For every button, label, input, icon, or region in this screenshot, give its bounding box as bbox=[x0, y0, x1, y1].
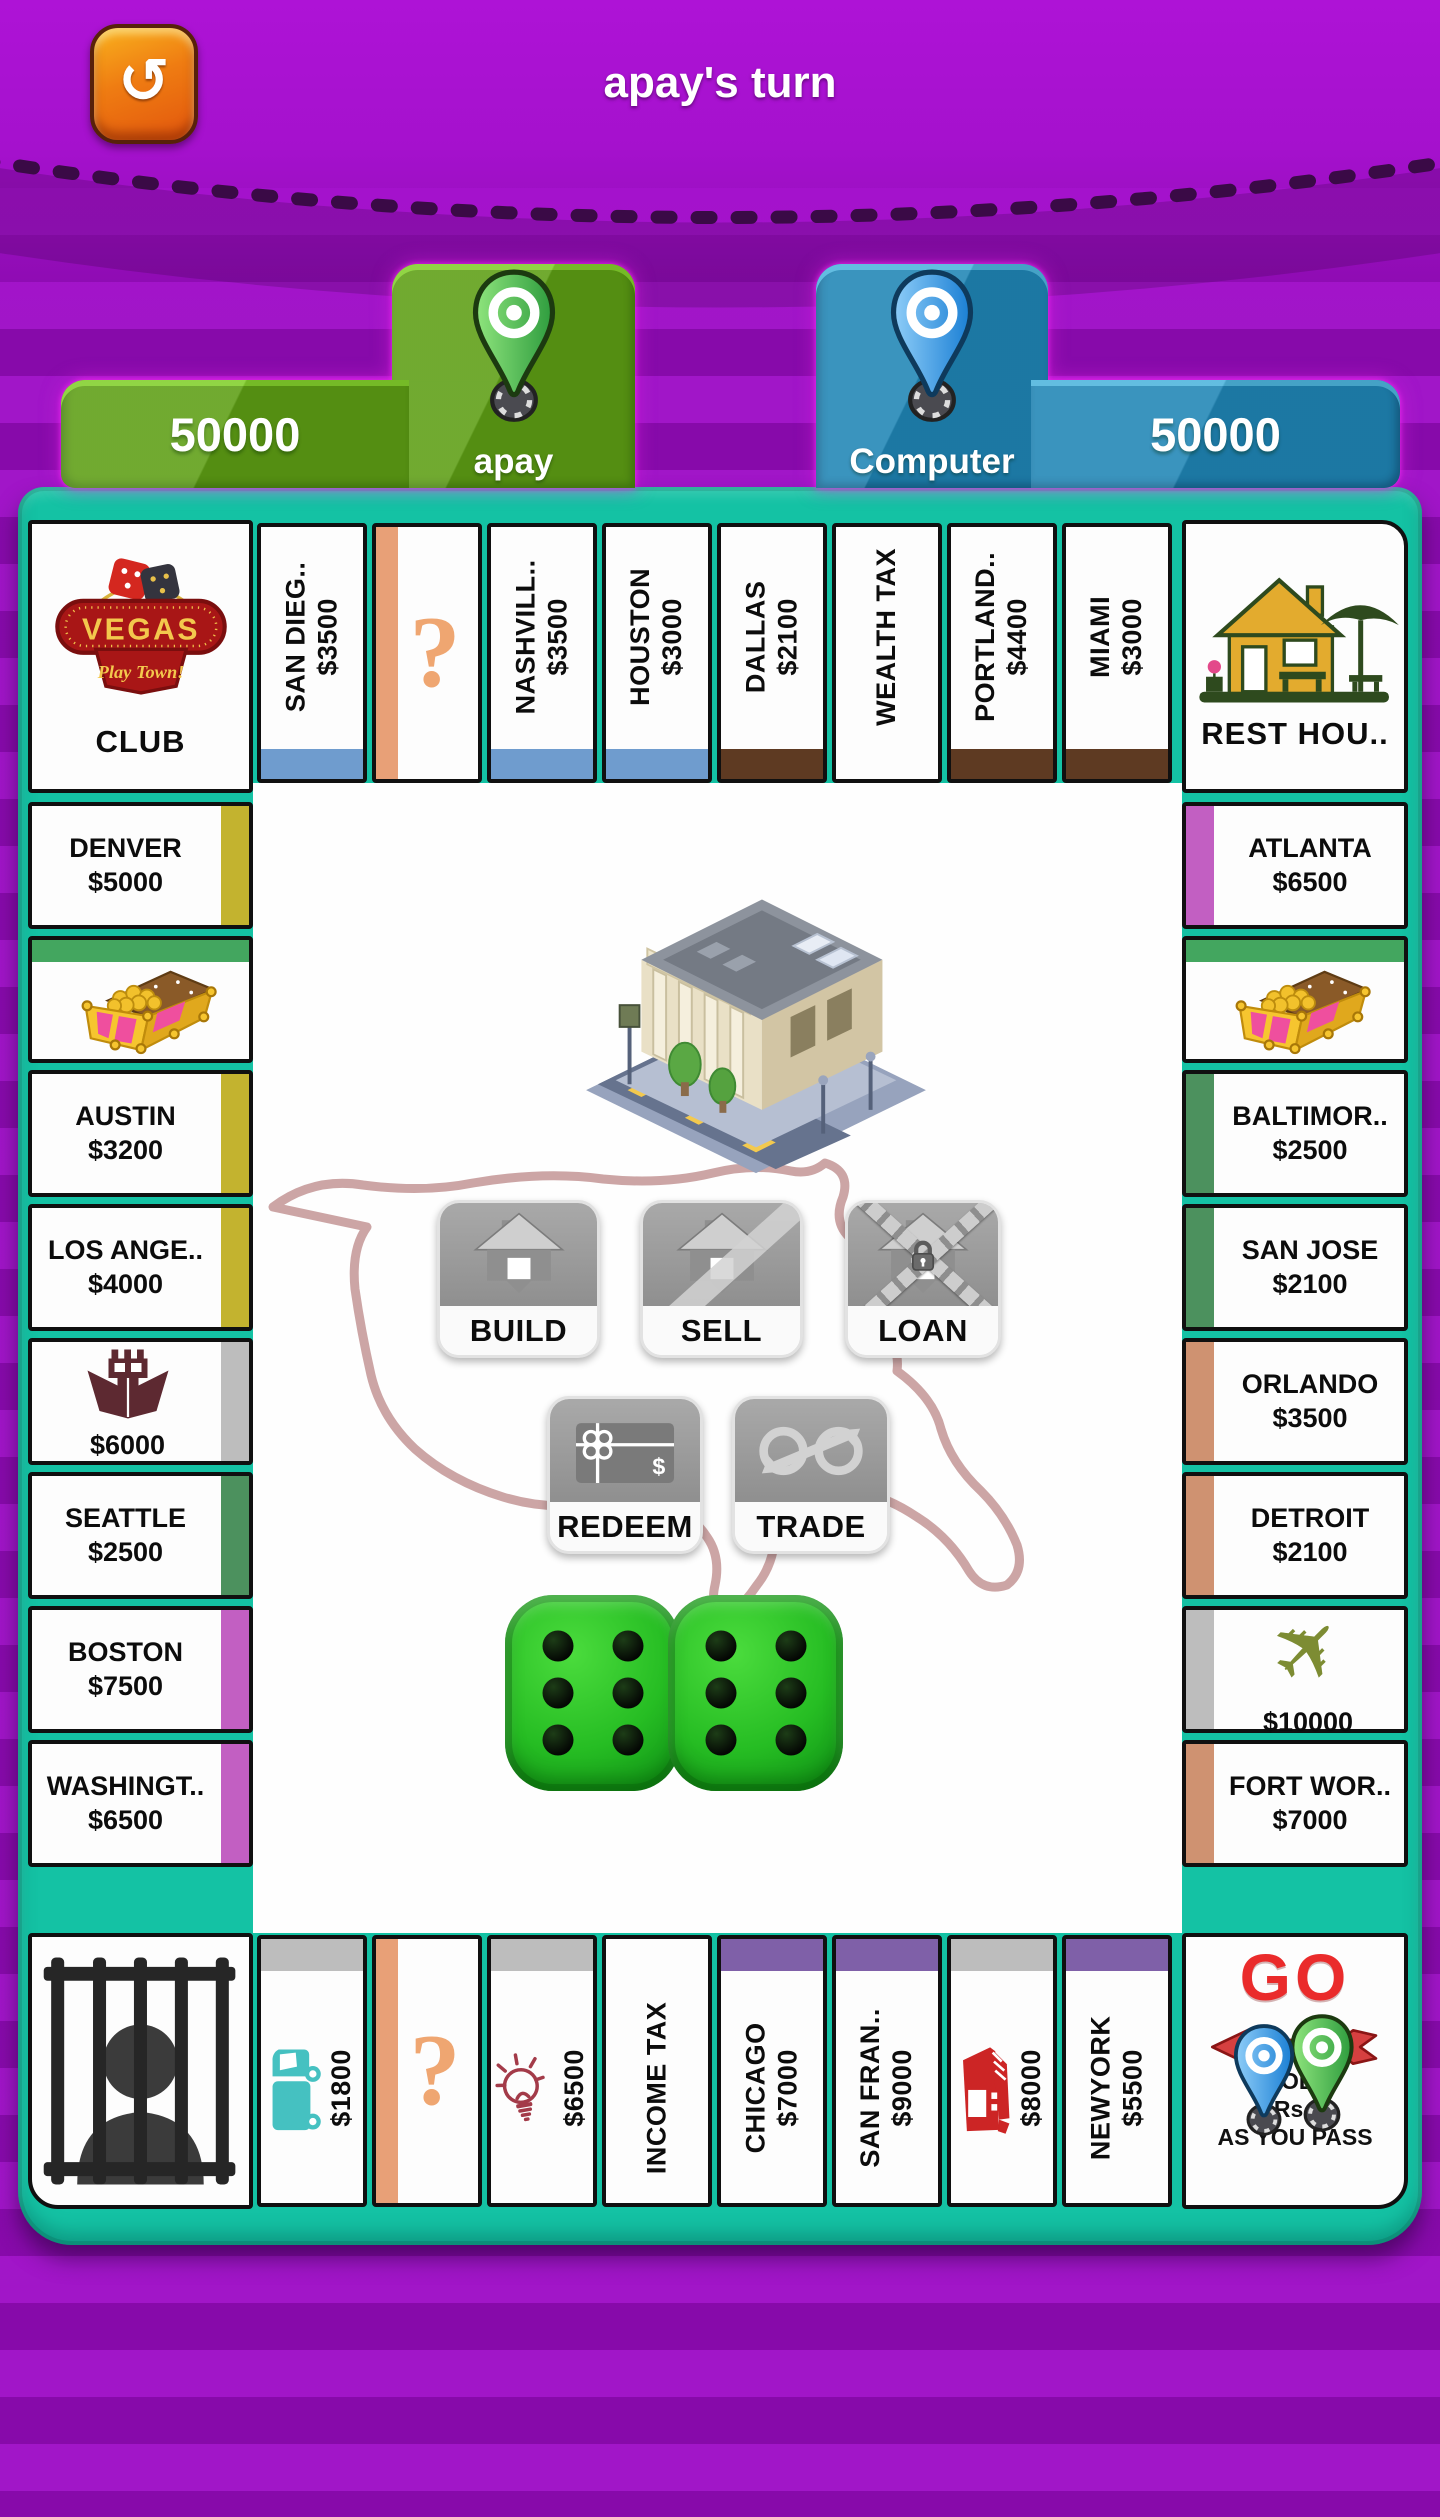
tile-label: HOUSTON$3000 bbox=[625, 568, 689, 706]
corner-jail-tile bbox=[28, 1933, 253, 2209]
tile-label: SAN JOSE$2100 bbox=[1186, 1208, 1404, 1327]
tile-text: $2500 bbox=[88, 1536, 163, 1570]
svg-text:$: $ bbox=[652, 1453, 665, 1479]
tile-text: $10000 bbox=[1263, 1707, 1353, 1738]
tile-portland[interactable]: PORTLAND..$4400 bbox=[947, 523, 1057, 783]
tram-icon bbox=[954, 2027, 1012, 2149]
die-pip bbox=[775, 1725, 806, 1756]
tile-label-wrap: SAN FRAN..$9000 bbox=[836, 1975, 938, 2201]
player-apay-name: apay bbox=[392, 442, 635, 482]
build-icon-area bbox=[440, 1203, 597, 1306]
corner-go-tile: GO COL.. Rs.. AS YOU PASS bbox=[1182, 1933, 1408, 2209]
util-wrap: $1800 bbox=[261, 1977, 363, 2199]
vegas-sign-text: VEGAS bbox=[82, 613, 200, 646]
player-apay-tab: apay bbox=[392, 264, 635, 488]
die-pip bbox=[542, 1678, 573, 1709]
tile-label-wrap: DALLAS$2100 bbox=[721, 527, 823, 747]
tile-text: $9000 bbox=[887, 2008, 919, 2168]
tile-label: CHICAGO$7000 bbox=[740, 2023, 804, 2154]
tile-text: MIAMI bbox=[1085, 596, 1117, 678]
die-pip bbox=[775, 1678, 806, 1709]
player-apay-money-box: 50000 bbox=[61, 380, 409, 488]
tile-text: DETROIT bbox=[1251, 1502, 1370, 1536]
price-slot: $1800 bbox=[324, 2023, 360, 2153]
cargo-ship-icon bbox=[76, 1342, 180, 1426]
tile-label-wrap: WEALTH TAX bbox=[836, 527, 938, 747]
game-board: BANK bbox=[18, 487, 1422, 2245]
util-wrap: $8000 bbox=[951, 1977, 1053, 2199]
tile-chicago[interactable]: CHICAGO$7000 bbox=[717, 1935, 827, 2207]
tile-label: INCOME TAX bbox=[641, 2002, 673, 2175]
vegas-sign-icon: VEGAS Play Town! bbox=[48, 554, 234, 718]
jail-icon bbox=[40, 1943, 240, 2199]
trade-button[interactable]: TRADE bbox=[732, 1396, 890, 1554]
chest-wrap bbox=[32, 940, 249, 1059]
tile-text: $7000 bbox=[1272, 1804, 1347, 1838]
tile-boston[interactable]: BOSTON$7500 bbox=[28, 1606, 253, 1733]
tile-san-jose[interactable]: SAN JOSE$2100 bbox=[1182, 1204, 1408, 1331]
question-mark-icon: ? bbox=[410, 602, 461, 704]
tile-label-wrap: HOUSTON$3000 bbox=[606, 527, 708, 747]
tile-label: SAN FRAN..$9000 bbox=[855, 2008, 919, 2168]
treasure-chest-icon bbox=[1219, 960, 1371, 1056]
player-computer-money: 50000 bbox=[1031, 380, 1400, 488]
tile-text: $6500 bbox=[88, 1804, 163, 1838]
tile-text: $3200 bbox=[88, 1134, 163, 1168]
die-pip bbox=[612, 1630, 643, 1661]
tile-newyork[interactable]: NEWYORK$5500 bbox=[1062, 1935, 1172, 2207]
util-wrap: $6000 bbox=[32, 1342, 249, 1461]
tile-label-wrap: MIAMI$3000 bbox=[1066, 527, 1168, 747]
tile-miami[interactable]: MIAMI$3000 bbox=[1062, 523, 1172, 783]
tile-text: $7500 bbox=[88, 1670, 163, 1704]
tile-text: $3500 bbox=[312, 562, 344, 713]
tile-util-right-6[interactable]: ✈$10000 bbox=[1182, 1606, 1408, 1733]
color-band bbox=[491, 749, 593, 779]
tile-text: SEATTLE bbox=[65, 1502, 186, 1536]
tile-label: BOSTON$7500 bbox=[32, 1610, 249, 1729]
tile-text: $7000 bbox=[772, 2023, 804, 2154]
tile-text: CHICAGO bbox=[740, 2023, 772, 2154]
tile-text: $5000 bbox=[88, 866, 163, 900]
tile-label: LOS ANGE..$4000 bbox=[32, 1208, 249, 1327]
tile-text: $5500 bbox=[1117, 2016, 1149, 2161]
tile-chance-top-1: ? bbox=[372, 523, 482, 783]
tile-label-wrap: INCOME TAX bbox=[606, 1975, 708, 2201]
tile-text: $2100 bbox=[1272, 1268, 1347, 1302]
tile-text: WASHINGT.. bbox=[47, 1770, 205, 1804]
tile-text: AUSTIN bbox=[75, 1100, 176, 1134]
tile-text: SAN JOSE bbox=[1242, 1234, 1379, 1268]
chance-wrap: ? bbox=[376, 1939, 478, 2203]
tile-label: NASHVILL..$3500 bbox=[510, 559, 574, 714]
tile-text: $3500 bbox=[1272, 1402, 1347, 1436]
vegas-ribbon-text: Play Town! bbox=[96, 661, 184, 681]
tile-text: FORT WOR.. bbox=[1229, 1770, 1391, 1804]
tile-label: DENVER$5000 bbox=[32, 806, 249, 925]
sell-icon-area bbox=[643, 1203, 800, 1306]
die-pip bbox=[775, 1630, 806, 1661]
color-band bbox=[261, 1939, 363, 1971]
die-2[interactable] bbox=[668, 1595, 843, 1791]
tile-text: SAN DIEG.. bbox=[280, 562, 312, 713]
tile-util-bottom-6[interactable]: $8000 bbox=[947, 1935, 1057, 2207]
color-band bbox=[1066, 1939, 1168, 1971]
tile-price: $1800 bbox=[326, 2049, 358, 2127]
build-button[interactable]: BUILD bbox=[437, 1200, 600, 1358]
util-wrap: $6500 bbox=[491, 1977, 593, 2199]
tile-text: ATLANTA bbox=[1248, 832, 1371, 866]
player-apay-money: 50000 bbox=[61, 380, 409, 488]
corner-rest-house-tile: REST HOU.. bbox=[1182, 520, 1408, 793]
bank-illustration: BANK bbox=[568, 855, 944, 1181]
tile-text: $3000 bbox=[657, 568, 689, 706]
tile-chance-bottom-1: ? bbox=[372, 1935, 482, 2207]
tile-util-left-4[interactable]: $6000 bbox=[28, 1338, 253, 1465]
tile-text: DENVER bbox=[69, 832, 182, 866]
die-pip bbox=[705, 1630, 736, 1661]
price-slot: $6500 bbox=[557, 2023, 593, 2153]
tile-text: LOS ANGE.. bbox=[48, 1234, 203, 1268]
loan-button[interactable]: LOAN bbox=[845, 1200, 1001, 1358]
die-pip bbox=[612, 1725, 643, 1756]
tile-label-wrap: CHICAGO$7000 bbox=[721, 1975, 823, 2201]
tile-price: $8000 bbox=[1016, 2049, 1048, 2127]
tile-baltimor[interactable]: BALTIMOR..$2500 bbox=[1182, 1070, 1408, 1197]
tile-label: WEALTH TAX bbox=[871, 548, 903, 726]
die-pip bbox=[705, 1725, 736, 1756]
color-band bbox=[491, 1939, 593, 1971]
tile-atlanta[interactable]: ATLANTA$6500 bbox=[1182, 802, 1408, 929]
tile-text: $4000 bbox=[88, 1268, 163, 1302]
tile-label-wrap: NEWYORK$5500 bbox=[1066, 1975, 1168, 2201]
color-band bbox=[721, 1939, 823, 1971]
tile-label: BALTIMOR..$2500 bbox=[1186, 1074, 1404, 1193]
tile-label: FORT WOR..$7000 bbox=[1186, 1744, 1404, 1863]
redeem-icon-area: $ bbox=[550, 1399, 700, 1502]
tile-text: WEALTH TAX bbox=[871, 548, 903, 726]
color-band bbox=[951, 1939, 1053, 1971]
tile-houston[interactable]: HOUSTON$3000 bbox=[602, 523, 712, 783]
tile-chest-left-1 bbox=[28, 936, 253, 1063]
tile-chest-right-1 bbox=[1182, 936, 1408, 1063]
tile-text: BALTIMOR.. bbox=[1232, 1100, 1387, 1134]
tile-text: $6000 bbox=[90, 1430, 165, 1461]
tile-text: $2100 bbox=[772, 581, 804, 694]
redeem-card-icon: $ bbox=[571, 1411, 679, 1491]
price-slot: $8000 bbox=[1014, 2023, 1050, 2153]
tile-text: INCOME TAX bbox=[641, 2002, 673, 2175]
rest-house-label: REST HOU.. bbox=[1201, 716, 1388, 752]
color-band bbox=[261, 749, 363, 779]
player-computer-money-box: 50000 bbox=[1031, 380, 1400, 488]
tile-detroit[interactable]: DETROIT$2100 bbox=[1182, 1472, 1408, 1599]
chest-wrap bbox=[1186, 940, 1404, 1059]
turn-banner: apay's turn bbox=[0, 56, 1440, 110]
rest-house-icon bbox=[1191, 562, 1399, 710]
redeem-label: REDEEM bbox=[550, 1502, 700, 1551]
die-pip bbox=[705, 1678, 736, 1709]
tile-text: $4400 bbox=[1002, 552, 1034, 722]
tile-los-ange[interactable]: LOS ANGE..$4000 bbox=[28, 1204, 253, 1331]
tile-util-bottom-2[interactable]: $6500 bbox=[487, 1935, 597, 2207]
tile-label-wrap: PORTLAND..$4400 bbox=[951, 527, 1053, 747]
tile-label: ATLANTA$6500 bbox=[1186, 806, 1404, 925]
corner-club-tile: VEGAS Play Town! CLUB bbox=[28, 520, 253, 793]
blue-pin-token-icon bbox=[816, 268, 1048, 424]
tile-wealth-tax: WEALTH TAX bbox=[832, 523, 942, 783]
airplane-icon: ✈ bbox=[1252, 1594, 1364, 1706]
tile-text: BOSTON bbox=[68, 1636, 183, 1670]
padlock-icon bbox=[906, 1239, 940, 1273]
tile-text: $2500 bbox=[1272, 1134, 1347, 1168]
tile-nashvill[interactable]: NASHVILL..$3500 bbox=[487, 523, 597, 783]
tile-text: SAN FRAN.. bbox=[855, 2008, 887, 2168]
tile-seattle[interactable]: SEATTLE$2500 bbox=[28, 1472, 253, 1599]
go-label: GO bbox=[1186, 1939, 1404, 2015]
trade-label: TRADE bbox=[735, 1502, 887, 1551]
redeem-button[interactable]: $ REDEEM bbox=[547, 1396, 703, 1554]
tile-dallas[interactable]: DALLAS$2100 bbox=[717, 523, 827, 783]
green-pin-token-icon bbox=[392, 268, 635, 424]
club-label: CLUB bbox=[95, 724, 185, 760]
tile-text: NEWYORK bbox=[1085, 2016, 1117, 2161]
tile-price: $6500 bbox=[559, 2049, 591, 2127]
blue-pin-token-icon bbox=[1226, 2023, 1302, 2142]
color-band bbox=[836, 1939, 938, 1971]
tile-san-dieg[interactable]: SAN DIEG..$3500 bbox=[257, 523, 367, 783]
tile-text: PORTLAND.. bbox=[970, 552, 1002, 722]
sell-label: SELL bbox=[643, 1306, 800, 1355]
tile-text: ORLANDO bbox=[1242, 1368, 1379, 1402]
delivery-truck-icon bbox=[264, 2026, 322, 2150]
color-band bbox=[951, 749, 1053, 779]
tile-label: WASHINGT..$6500 bbox=[32, 1744, 249, 1863]
tile-text: $2100 bbox=[1272, 1536, 1347, 1570]
chance-wrap: ? bbox=[376, 527, 478, 779]
player-panel-apay: apay 50000 bbox=[61, 264, 635, 488]
tile-label: SAN DIEG..$3500 bbox=[280, 562, 344, 713]
tile-text: $3000 bbox=[1117, 596, 1149, 678]
color-band bbox=[1066, 749, 1168, 779]
die-pip bbox=[612, 1678, 643, 1709]
player-computer-name: Computer bbox=[816, 442, 1048, 482]
color-band bbox=[606, 749, 708, 779]
tile-orlando[interactable]: ORLANDO$3500 bbox=[1182, 1338, 1408, 1465]
player-computer-tab: Computer bbox=[816, 264, 1048, 488]
color-band bbox=[721, 749, 823, 779]
tile-austin[interactable]: AUSTIN$3200 bbox=[28, 1070, 253, 1197]
treasure-chest-icon bbox=[65, 960, 217, 1056]
tile-label: MIAMI$3000 bbox=[1085, 596, 1149, 678]
tile-denver[interactable]: DENVER$5000 bbox=[28, 802, 253, 929]
util-wrap: ✈$10000 bbox=[1186, 1610, 1404, 1729]
loan-label: LOAN bbox=[848, 1306, 998, 1355]
tile-washingt[interactable]: WASHINGT..$6500 bbox=[28, 1740, 253, 1867]
tile-label: DALLAS$2100 bbox=[740, 581, 804, 694]
light-bulb-icon bbox=[491, 2033, 555, 2143]
trade-icon-area bbox=[735, 1399, 887, 1502]
tile-text: $6500 bbox=[1272, 866, 1347, 900]
game-screen: ↺ apay's turn apay 50000 Compute bbox=[0, 0, 1440, 2517]
tile-label-wrap: SAN DIEG..$3500 bbox=[261, 527, 363, 747]
loan-icon-area bbox=[848, 1203, 998, 1306]
tile-text: HOUSTON bbox=[625, 568, 657, 706]
tile-fort-wor[interactable]: FORT WOR..$7000 bbox=[1182, 1740, 1408, 1867]
sell-button[interactable]: SELL bbox=[640, 1200, 803, 1358]
player-panel-computer: Computer 50000 bbox=[816, 264, 1400, 488]
tile-util-bottom-0[interactable]: $1800 bbox=[257, 1935, 367, 2207]
tile-text: DALLAS bbox=[740, 581, 772, 694]
turn-banner-text: apay's turn bbox=[594, 56, 847, 110]
tile-san-fran[interactable]: SAN FRAN..$9000 bbox=[832, 1935, 942, 2207]
tile-text: $3500 bbox=[542, 559, 574, 714]
tile-income-tax: INCOME TAX bbox=[602, 1935, 712, 2207]
tile-label: SEATTLE$2500 bbox=[32, 1476, 249, 1595]
tile-label: ORLANDO$3500 bbox=[1186, 1342, 1404, 1461]
tile-label: PORTLAND..$4400 bbox=[970, 552, 1034, 722]
tile-label: AUSTIN$3200 bbox=[32, 1074, 249, 1193]
build-house-icon bbox=[473, 1212, 565, 1298]
die-pip bbox=[542, 1725, 573, 1756]
build-label: BUILD bbox=[440, 1306, 597, 1355]
tile-label: NEWYORK$5500 bbox=[1085, 2016, 1149, 2161]
trade-arrows-icon bbox=[755, 1415, 867, 1487]
die-pip bbox=[542, 1630, 573, 1661]
tile-label: DETROIT$2100 bbox=[1186, 1476, 1404, 1595]
tile-text: NASHVILL.. bbox=[510, 559, 542, 714]
die-1[interactable] bbox=[505, 1595, 680, 1791]
tile-label-wrap: NASHVILL..$3500 bbox=[491, 527, 593, 747]
question-mark-icon: ? bbox=[410, 2020, 461, 2122]
